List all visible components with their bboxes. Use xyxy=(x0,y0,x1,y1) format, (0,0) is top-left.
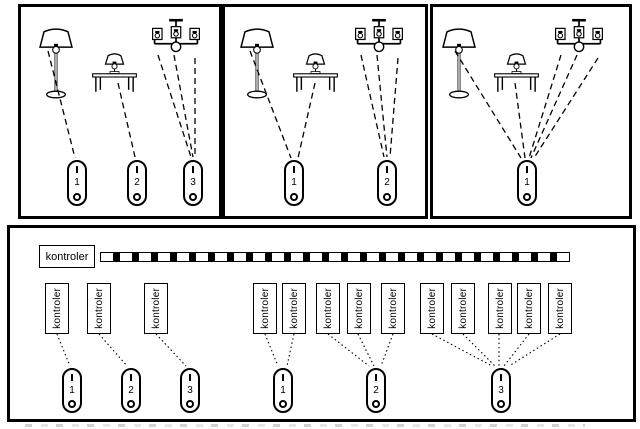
remote-digit: 2 xyxy=(384,178,390,188)
dashed-line xyxy=(390,58,398,157)
remote-digit: 1 xyxy=(69,386,75,396)
bus-controller-box: kontroler xyxy=(39,245,95,268)
off-symbol-icon xyxy=(127,400,135,408)
bus-rail xyxy=(100,252,570,262)
table-lamp-icon xyxy=(294,54,338,92)
on-symbol-icon xyxy=(293,166,296,173)
controller-label: kontroler xyxy=(427,288,438,329)
chandelier-icon xyxy=(556,20,603,52)
off-symbol-icon xyxy=(189,193,197,201)
off-symbol-icon xyxy=(497,400,505,408)
dotted-line xyxy=(463,334,495,366)
remote-digit: 2 xyxy=(128,386,134,396)
remote-digit: 1 xyxy=(291,178,297,188)
chandelier-icon xyxy=(153,20,200,52)
dotted-line xyxy=(57,334,70,366)
remote: 3 xyxy=(491,368,511,413)
dotted-line xyxy=(381,334,393,366)
controller-box: kontroler xyxy=(420,283,444,334)
bus-system-panel: kontroler kontroler kontroler kontroler … xyxy=(7,225,636,422)
remote: 2 xyxy=(127,160,147,206)
connection-lines xyxy=(455,51,598,158)
controller-label: kontroler xyxy=(458,288,469,329)
table-lamp-icon xyxy=(93,54,137,92)
controller-box: kontroler xyxy=(87,283,111,334)
remote-digit: 2 xyxy=(373,386,379,396)
dashed-line xyxy=(48,51,75,158)
floor-lamp-icon xyxy=(40,29,72,98)
remote-digit: 3 xyxy=(187,386,193,396)
controller-box: kontroler xyxy=(253,283,277,334)
dotted-line xyxy=(432,334,492,366)
controller-box: kontroler xyxy=(381,283,405,334)
on-symbol-icon xyxy=(136,166,139,173)
floor-lamp-icon xyxy=(241,29,273,98)
remote: 1 xyxy=(273,368,293,413)
off-symbol-icon xyxy=(133,193,141,201)
controller-box: kontroler xyxy=(282,283,306,334)
controller-label: kontroler xyxy=(524,288,535,329)
dashed-line xyxy=(531,55,577,158)
dotted-line xyxy=(265,334,278,366)
remote: 2 xyxy=(366,368,386,413)
dashed-line xyxy=(298,83,315,158)
on-symbol-icon xyxy=(189,374,192,381)
controller-label: kontroler xyxy=(323,288,334,329)
off-symbol-icon xyxy=(186,400,194,408)
remote-digit: 3 xyxy=(498,386,504,396)
controller-box: kontroler xyxy=(144,283,168,334)
controller-label: kontroler xyxy=(495,288,506,329)
dashed-line xyxy=(455,51,521,158)
controller-label: kontroler xyxy=(52,288,63,329)
on-symbol-icon xyxy=(386,166,389,173)
dotted-line xyxy=(156,334,186,366)
controller-label: kontroler xyxy=(289,288,300,329)
on-symbol-icon xyxy=(375,374,378,381)
remote: 1 xyxy=(67,160,87,206)
connection-lines xyxy=(48,51,195,158)
remote: 3 xyxy=(180,368,200,413)
on-symbol-icon xyxy=(526,166,529,173)
remote-digit: 1 xyxy=(74,178,80,188)
scenario-panel-2: 1 2 xyxy=(222,4,428,219)
off-symbol-icon xyxy=(73,193,81,201)
controller-box: kontroler xyxy=(488,283,512,334)
dashed-line xyxy=(118,83,135,157)
controller-box: kontroler xyxy=(45,283,69,334)
off-symbol-icon xyxy=(290,193,298,201)
off-symbol-icon xyxy=(372,400,380,408)
on-symbol-icon xyxy=(71,374,74,381)
remote: 1 xyxy=(62,368,82,413)
controller-box: kontroler xyxy=(548,283,572,334)
on-symbol-icon xyxy=(192,166,195,173)
controller-label: kontroler xyxy=(151,288,162,329)
dotted-line xyxy=(328,334,369,366)
remote-digit: 2 xyxy=(134,178,140,188)
controller-box: kontroler xyxy=(517,283,541,334)
remote: 2 xyxy=(377,160,397,206)
chandelier-icon xyxy=(356,20,403,52)
scenario-panel-1: 1 2 3 xyxy=(18,4,222,219)
controller-label: kontroler xyxy=(354,288,365,329)
off-symbol-icon xyxy=(68,400,76,408)
dotted-line xyxy=(287,334,294,366)
remote-digit: 1 xyxy=(524,178,530,188)
on-symbol-icon xyxy=(130,374,133,381)
controller-label: kontroler xyxy=(555,288,566,329)
floor-lamp-icon xyxy=(443,29,475,98)
dotted-line xyxy=(504,334,529,366)
remote-digit: 3 xyxy=(190,178,196,188)
connection-lines xyxy=(57,334,560,366)
connection-lines xyxy=(250,51,398,158)
off-symbol-icon xyxy=(523,193,531,201)
on-symbol-icon xyxy=(282,374,285,381)
dashed-line xyxy=(174,55,193,157)
on-symbol-icon xyxy=(76,166,79,173)
dashed-line xyxy=(377,55,387,157)
scan-artifact xyxy=(25,424,585,427)
table-lamp-icon xyxy=(495,54,539,92)
remote: 1 xyxy=(517,160,537,206)
controller-box: kontroler xyxy=(316,283,340,334)
dotted-line xyxy=(509,334,560,366)
dashed-line xyxy=(361,55,384,157)
dashed-line xyxy=(158,55,191,157)
dashed-line xyxy=(515,83,525,158)
on-symbol-icon xyxy=(500,374,503,381)
off-symbol-icon xyxy=(383,193,391,201)
off-symbol-icon xyxy=(279,400,287,408)
dashed-line xyxy=(534,58,598,158)
diagram-canvas: 1 2 3 1 xyxy=(0,0,640,429)
controller-box: kontroler xyxy=(347,283,371,334)
controller-label: kontroler xyxy=(260,288,271,329)
dotted-line xyxy=(358,334,374,366)
scenario-panel-3: 1 xyxy=(430,4,632,219)
remote: 3 xyxy=(183,160,203,206)
controller-label: kontroler xyxy=(94,288,105,329)
dotted-line xyxy=(99,334,127,366)
bus-controller-label: kontroler xyxy=(46,251,89,263)
controller-box: kontroler xyxy=(451,283,475,334)
dashed-line xyxy=(529,55,561,158)
controller-label: kontroler xyxy=(388,288,399,329)
remote-digit: 1 xyxy=(280,386,286,396)
remote: 1 xyxy=(284,160,304,206)
remote: 2 xyxy=(121,368,141,413)
